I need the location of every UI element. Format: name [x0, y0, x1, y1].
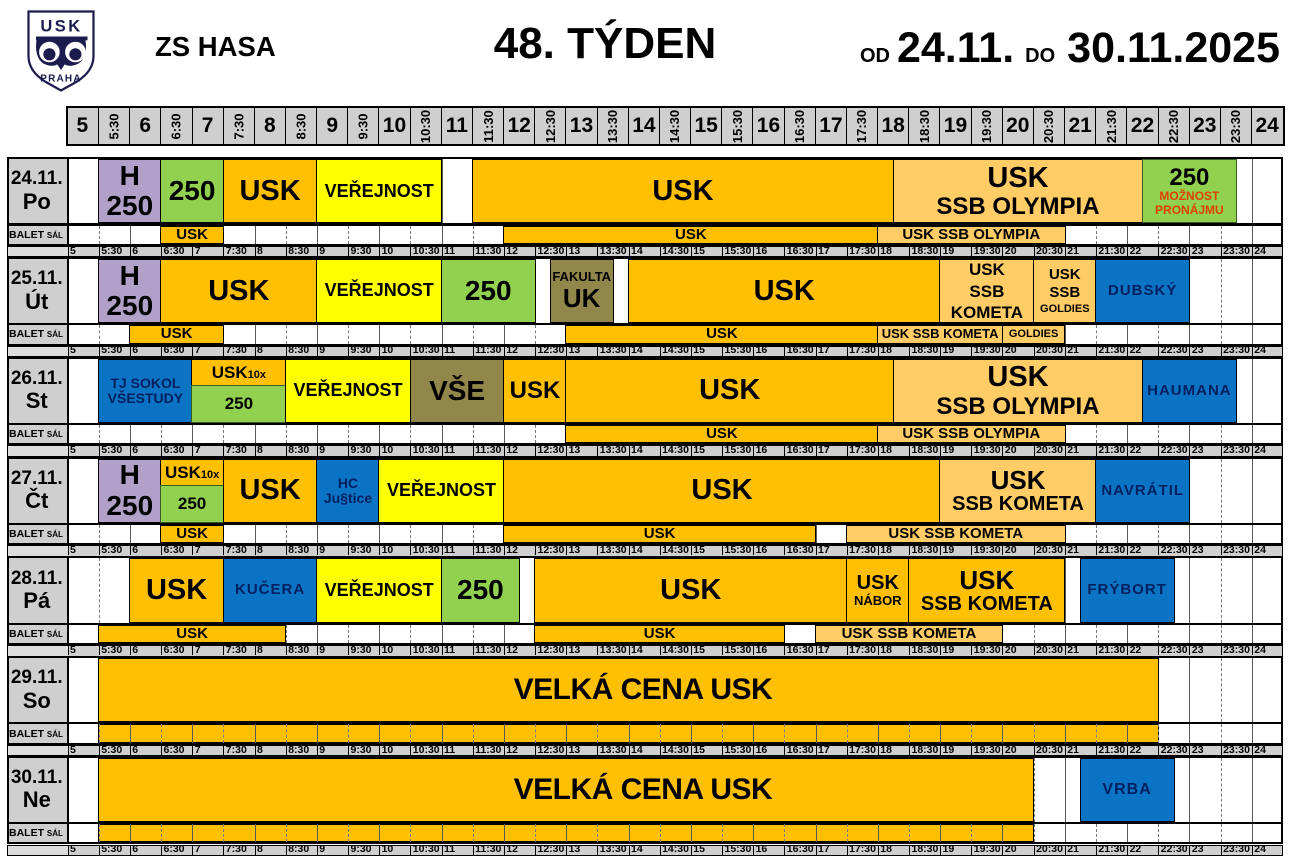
svg-text:USK: USK [40, 18, 82, 36]
svg-text:PRAHA: PRAHA [40, 74, 82, 85]
